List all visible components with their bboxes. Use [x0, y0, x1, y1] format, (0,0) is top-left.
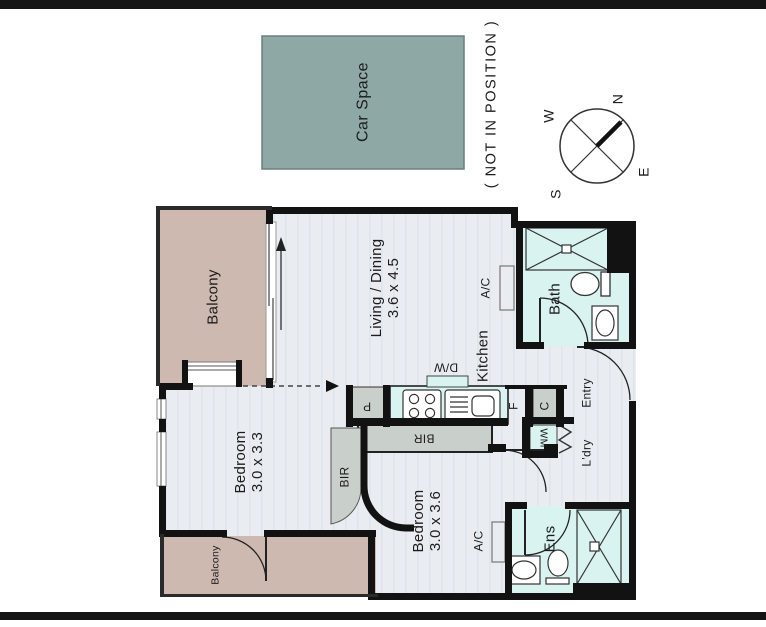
compass-icon: [560, 109, 634, 183]
bir-strip-label: BIR: [414, 430, 435, 447]
balcony-small-label: Balcony: [208, 545, 225, 584]
bedroom2-label: Bedroom 3.0 x 3.6: [410, 490, 444, 553]
bedroom2-name: Bedroom: [410, 490, 427, 553]
ac-unit-living: [500, 266, 514, 310]
not-in-position-label: ( NOT IN POSITION ): [484, 20, 501, 188]
bath-toilet-icon: [571, 272, 610, 296]
bath-label: Bath: [547, 283, 564, 315]
living-dining-name: Living / Dining: [368, 239, 385, 338]
balcony-small-area: [162, 536, 376, 596]
living-dining-label: Living / Dining 3.6 x 4.5: [368, 239, 402, 338]
ensuite-toilet-icon: [546, 550, 569, 584]
bedroom1-dims: 3.0 x 3.3: [249, 431, 266, 494]
ensuite-label: Ens: [542, 526, 559, 553]
bedroom1-label: Bedroom 3.0 x 3.3: [232, 431, 266, 494]
car-space-label: Car Space: [355, 62, 372, 142]
washing-machine-label: WM: [535, 428, 552, 447]
cooktop-icon: [403, 390, 441, 421]
fridge-label: F: [506, 402, 523, 410]
bedroom2-dims: 3.0 x 3.6: [427, 490, 444, 553]
bedroom1-window-bay: [182, 360, 242, 387]
compass-w-label: W: [541, 109, 558, 123]
balcony-main-label: Balcony: [205, 269, 222, 324]
bir-vertical-label: BIR: [337, 467, 354, 488]
cupboard-label: C: [537, 402, 554, 411]
kitchen-label: Kitchen: [475, 330, 492, 382]
laundry-label: L'dry: [579, 439, 596, 466]
dishwasher-label: D/W: [434, 359, 458, 376]
ensuite-basin-icon: [508, 556, 540, 584]
ac-unit-bedroom2: [492, 522, 505, 562]
living-dining-dims: 3.6 x 4.5: [385, 239, 402, 338]
compass-n-label: N: [610, 94, 627, 104]
compass-north-pointer: [597, 122, 621, 146]
compass-e-label: E: [636, 167, 653, 177]
compass-s-label: S: [548, 189, 565, 199]
entry-label: Entry: [579, 378, 596, 408]
ac-living-label: A/C: [478, 278, 495, 299]
bedroom1-windows: [157, 399, 166, 486]
sink-icon: [445, 390, 500, 421]
bath-basin-icon: [592, 306, 618, 340]
floorplan-page: Car Space ( NOT IN POSITION ) N W E S Ba…: [0, 0, 766, 627]
dishwasher-box: [427, 376, 468, 387]
pantry-label: P: [363, 398, 371, 415]
bedroom1-name: Bedroom: [232, 431, 249, 494]
ac-bedroom2-label: A/C: [471, 531, 488, 552]
ensuite-shower-icon: [577, 510, 621, 584]
bath-shower-icon: [526, 228, 608, 270]
